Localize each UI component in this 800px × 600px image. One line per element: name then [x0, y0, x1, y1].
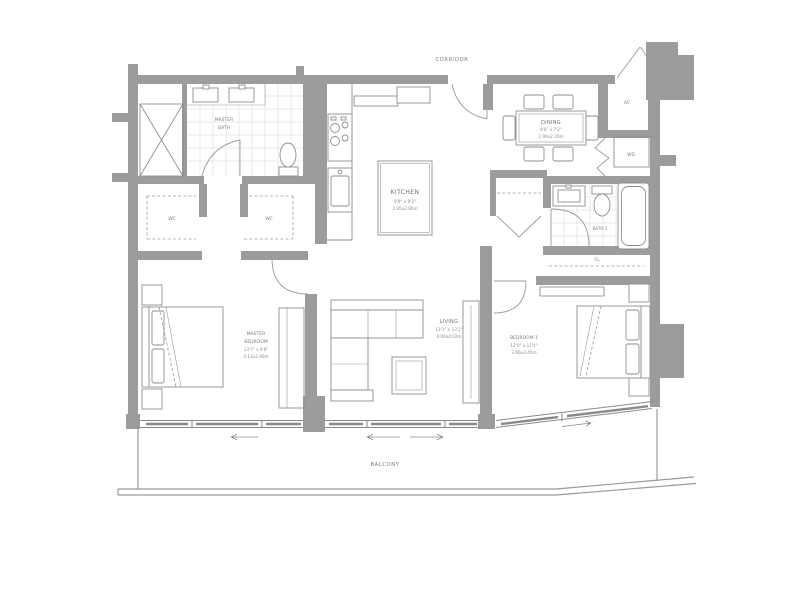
ac-door — [617, 47, 650, 78]
wd-bifold-door — [595, 138, 609, 176]
wall-segment — [303, 84, 327, 184]
kitchen-island-inner — [381, 164, 430, 233]
nightstand — [629, 378, 649, 396]
sliding-door-arrow — [562, 421, 591, 427]
dining-chair — [524, 147, 544, 161]
bedroom1-headboard — [641, 306, 650, 378]
pillow — [152, 349, 164, 383]
wall-segment — [138, 251, 202, 260]
bath1: BATH 1 — [551, 183, 649, 249]
closets-wc: WC WC — [147, 196, 293, 239]
master-bath-label: MASTER — [215, 117, 234, 123]
pillow — [626, 344, 639, 374]
bedroom1-dim-ft: 12'0" x 11'4" — [510, 343, 537, 348]
wall-segment — [242, 176, 303, 184]
sliding-door-arrow — [231, 434, 258, 439]
wardrobe — [279, 308, 304, 408]
nightstand — [142, 389, 162, 409]
dining-dim-ft: 9'6" x 7'2" — [540, 127, 562, 132]
dining-chair — [553, 95, 573, 109]
master-bath-label-2: BATH — [218, 125, 230, 131]
nightstand — [629, 284, 649, 302]
kitchen-counter — [327, 84, 352, 240]
sink-right-faucet-icon — [239, 85, 245, 89]
wall-segment — [648, 176, 660, 255]
wall-segment — [112, 173, 128, 182]
sofa-armrest — [331, 390, 373, 401]
balcony-label: BALCONY — [371, 462, 400, 468]
wall-segment — [112, 113, 128, 122]
wall-segment — [483, 84, 493, 110]
wall-segment — [650, 255, 660, 407]
entry-door — [452, 84, 487, 119]
floor-plan-page: MASTER BATH WC WC KITCHEN 9'8" x 9'2" 2.… — [0, 0, 800, 600]
kitchen-dim-m: 2.95x2.80m — [392, 206, 417, 211]
wall-segment — [126, 414, 140, 429]
sliding-door-arrow — [367, 434, 400, 439]
master-bedroom: MASTER BEDROOM 13'7" x 9'6" 4.13x2.90m — [142, 258, 308, 409]
master-bath: MASTER BATH — [187, 84, 303, 176]
wall-segment — [315, 184, 327, 244]
entry: CORRIDOR — [436, 57, 487, 119]
living-dim-ft: 13'1" x 13'2" — [435, 327, 462, 332]
bedroom1-dresser — [540, 287, 604, 296]
living-room: LIVING 13'1" x 13'2" 4.00x4.02m — [331, 300, 479, 403]
nightstand — [142, 285, 162, 305]
windows-balcony: BALCONY — [118, 402, 696, 496]
bath1-toilet-bowl-icon — [594, 194, 610, 216]
coffee-table — [392, 357, 426, 394]
master-bedroom-dim-m: 4.13x2.90m — [243, 354, 268, 359]
wall-segment — [487, 75, 615, 84]
shaft — [140, 104, 183, 176]
bath1-door — [551, 209, 589, 246]
linen-closet: CL — [549, 257, 644, 266]
sofa-seats — [331, 310, 423, 338]
master-bath-door — [202, 140, 240, 176]
balcony-rail-outer — [118, 477, 694, 489]
pillow — [626, 310, 639, 340]
wall-segment — [660, 324, 684, 378]
kitchen-island — [378, 161, 432, 235]
toilet-bowl-icon — [280, 143, 296, 167]
bathtub — [618, 183, 649, 249]
hall-closet — [497, 193, 541, 237]
coffee-table-inner — [396, 361, 422, 390]
dining-chair — [553, 147, 573, 161]
floor-plan-svg: MASTER BATH WC WC KITCHEN 9'8" x 9'2" 2.… — [0, 0, 800, 600]
sofa-back — [331, 300, 423, 310]
wall-segment — [138, 176, 204, 184]
master-bedroom-door — [272, 258, 308, 294]
sink-left-faucet-icon — [203, 85, 209, 89]
wc-right-label: WC — [265, 216, 273, 222]
bedroom1-door — [494, 281, 526, 313]
hall-closet-doors — [497, 216, 541, 237]
wall-segment — [303, 396, 325, 432]
sliding-door-arrow — [410, 434, 443, 439]
wall-segment — [478, 414, 495, 429]
wc-left-label: WC — [168, 216, 176, 222]
cl-label: CL — [594, 257, 600, 262]
wall-corner-pier — [646, 42, 694, 100]
dining: DINING 9'6" x 7'2" 2.90x2.20m — [503, 95, 598, 161]
bath1-toilet-tank — [592, 186, 612, 194]
wall-segment — [480, 246, 492, 414]
master-bedroom-label-2: BEDROOM — [244, 339, 268, 345]
dining-dim-m: 2.90x2.20m — [538, 134, 563, 139]
toilet-tank — [279, 167, 298, 176]
ac-label: AC — [624, 100, 630, 106]
bedroom1-label: BEDROOM 1 — [510, 335, 538, 341]
wall-segment — [128, 75, 448, 84]
kitchen: KITCHEN 9'8" x 9'2" 2.95x2.80m — [327, 84, 432, 240]
bedroom1: BEDROOM 1 12'0" x 11'4" 3.66x3.45m — [494, 281, 650, 396]
wall-segment — [490, 178, 496, 216]
dining-chair — [524, 95, 544, 109]
dining-chair — [503, 116, 515, 140]
master-bedroom-label: MASTER — [247, 331, 266, 337]
wd-label: WD — [627, 152, 635, 158]
master-bed-headboard — [142, 307, 149, 387]
living-label: LIVING — [440, 319, 459, 325]
living-dim-m: 4.00x4.02m — [436, 334, 461, 339]
wall-segment — [598, 84, 608, 134]
bath1-label: BATH 1 — [592, 226, 607, 231]
shaft-x-icon — [140, 104, 183, 176]
wall-segment — [199, 184, 207, 217]
kitchen-dim-ft: 9'8" x 9'2" — [394, 199, 416, 204]
wall-segment — [241, 251, 308, 260]
corridor-label: CORRIDOR — [436, 57, 469, 63]
dining-chair — [586, 116, 598, 140]
wall-segment — [543, 184, 551, 208]
wall-segment — [490, 170, 547, 178]
wall-segment — [128, 64, 138, 76]
bath1-faucet-icon — [566, 185, 571, 188]
bedroom1-window-glass — [501, 406, 648, 424]
sink-right — [229, 88, 254, 102]
kitchen-upper-cabinet — [354, 96, 398, 106]
wall-segment — [240, 184, 248, 217]
bedroom1-dim-m: 3.66x3.45m — [511, 350, 536, 355]
washer-dryer — [614, 137, 649, 167]
wall-segment — [660, 155, 676, 166]
sink-left — [193, 88, 218, 102]
wall-segment — [648, 100, 660, 132]
kitchen-hood — [397, 87, 430, 103]
wall-segment — [296, 66, 304, 76]
master-bedroom-dim-ft: 13'7" x 9'6" — [244, 347, 269, 352]
dining-label: DINING — [541, 120, 561, 126]
kitchen-label: KITCHEN — [391, 189, 420, 196]
wall-segment — [128, 75, 138, 422]
pillow — [152, 311, 164, 345]
